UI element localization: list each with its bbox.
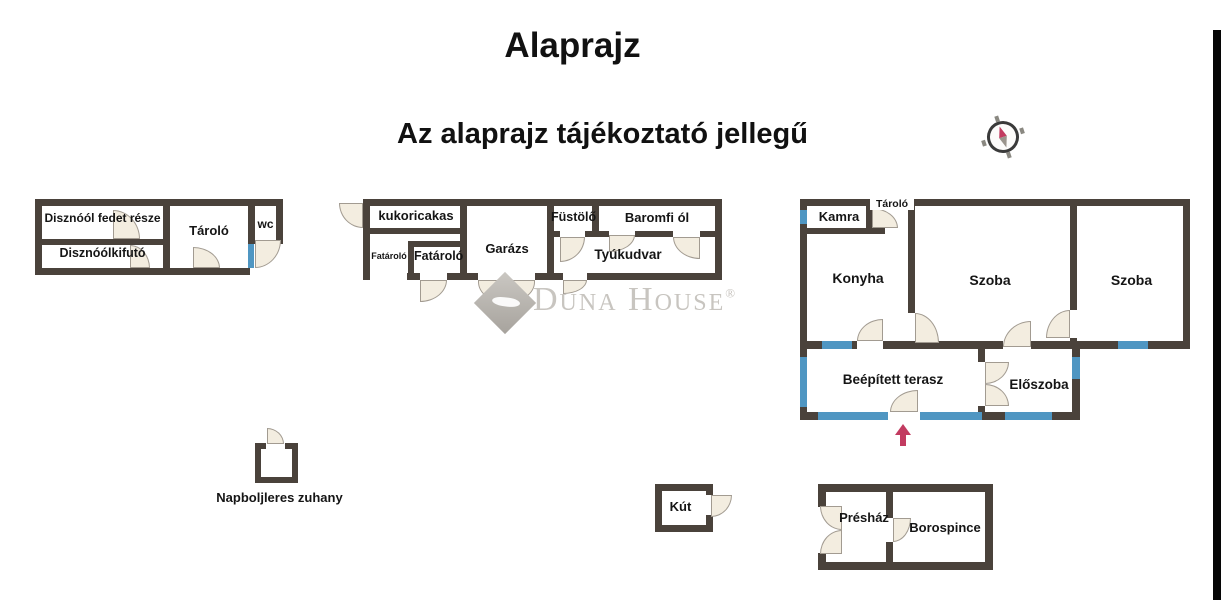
door-arc (1046, 310, 1070, 338)
door-arc (267, 428, 284, 444)
room-label-kitchen: Konyha (815, 271, 901, 286)
wall (42, 239, 163, 245)
page-edge-bar (1213, 30, 1221, 600)
door-opening (908, 313, 915, 341)
room-label-well: Kút (655, 500, 706, 514)
building-shower (255, 427, 299, 483)
building-farm: kukoricakas Fatároló Fatároló Garázs Füs… (363, 199, 722, 280)
door-opening (563, 273, 587, 280)
wall (818, 484, 993, 492)
wall (655, 484, 713, 491)
door-arc (1003, 321, 1031, 347)
door-arc (872, 208, 898, 228)
room-label-storage: Tároló (170, 224, 248, 238)
watermark-brand-text: Duna House (533, 281, 725, 318)
room-label-smoker: Füstölő (551, 211, 595, 224)
room-label-garage: Garázs (467, 242, 547, 256)
page-title: Alaprajz (0, 26, 1145, 66)
window (248, 244, 254, 268)
building-pigsty: Disznóól fedet része Disznóólkifutó Táro… (35, 199, 283, 275)
compass-tick-s (1006, 152, 1012, 159)
building-press-house: Présház Borospince (818, 484, 993, 570)
door-opening (978, 362, 985, 406)
room-label-pantry: Kamra (810, 210, 868, 224)
window (1005, 412, 1052, 420)
door-opening (857, 341, 883, 349)
room-label-corn-crib: kukoricakas (370, 209, 462, 223)
wall (408, 241, 460, 247)
wall (800, 199, 1190, 206)
wall (818, 562, 993, 570)
door-opening (888, 412, 920, 420)
room-label-house-storage: Tároló (870, 199, 914, 210)
compass-tick-w (981, 140, 987, 147)
door-arc (255, 240, 281, 268)
window (1118, 341, 1148, 349)
window (1072, 357, 1080, 379)
building-house: Kamra Tároló Konyha Szoba Szoba Beépítet… (800, 199, 1190, 420)
registered-trademark-icon: ® (725, 286, 735, 301)
building-well: Kút (655, 484, 713, 532)
room-label-wine-cellar: Borospince (906, 521, 984, 535)
wall (35, 268, 250, 275)
door-arc (915, 313, 939, 343)
wall (985, 484, 993, 570)
window (800, 357, 807, 407)
room-label-hall: Előszoba (999, 378, 1079, 392)
room-label-press-house: Présház (831, 511, 897, 525)
door-arc (711, 495, 732, 517)
door-opening (1070, 310, 1077, 338)
window (920, 412, 982, 420)
room-label-wc: wc (253, 218, 278, 231)
wall (363, 199, 722, 206)
door-opening (420, 273, 447, 280)
room-label-pigsty-run: Disznóólkifutó (42, 247, 163, 260)
window (800, 210, 807, 224)
dunahouse-watermark: Duna House® (533, 281, 735, 319)
wall (255, 477, 298, 483)
room-label-room-center: Szoba (915, 273, 1065, 288)
room-label-poultry-coop: Baromfi ól (599, 211, 715, 225)
room-label-terrace: Beépített terasz (818, 373, 968, 387)
wall (363, 199, 370, 280)
compass-tick-n (994, 115, 1000, 122)
room-label-wood-store-small: Fatároló (370, 252, 408, 261)
wall (1183, 199, 1190, 349)
wall (370, 228, 462, 234)
room-label-pigsty-covered: Disznóól fedet része (42, 212, 163, 225)
entry-door-arc (890, 390, 918, 412)
wall (655, 525, 713, 532)
label-solar-shower: Napboljleres zuhany (197, 491, 362, 505)
logo-swoosh (492, 296, 521, 308)
wall (163, 206, 170, 275)
window (822, 341, 852, 349)
door-arc (673, 237, 700, 259)
room-label-chicken-yard: Tyúkudvar (588, 248, 668, 262)
window (818, 412, 888, 420)
door-arc (193, 247, 220, 268)
door-arc (857, 319, 883, 341)
room-label-room-right: Szoba (1080, 273, 1183, 288)
wall (35, 199, 42, 275)
entrance-arrow-stem (900, 434, 906, 446)
wall (807, 228, 885, 234)
door-arc (339, 203, 363, 228)
wall (35, 199, 283, 206)
room-label-wood-store: Fatároló (414, 250, 460, 263)
door-arc (560, 237, 585, 262)
floorplan-page: Alaprajz Az alaprajz tájékoztató jellegű… (0, 0, 1221, 600)
door-arc (420, 280, 447, 302)
wall (715, 199, 722, 280)
